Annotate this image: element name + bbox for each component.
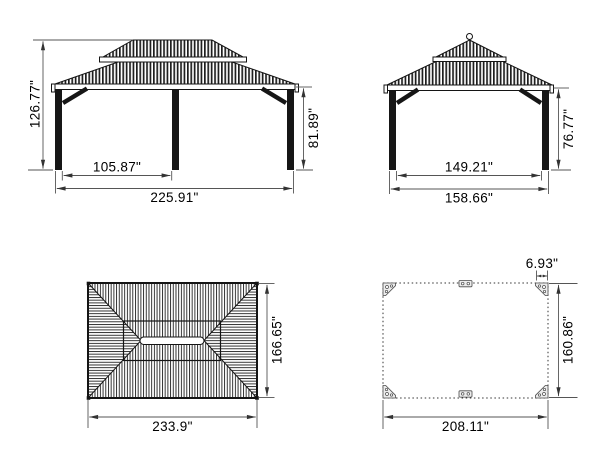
roof-plan-corner-cap-ne bbox=[255, 282, 259, 286]
dim-side-eave-height: 76.77" bbox=[551, 88, 576, 170]
side-eave-height-label: 76.77" bbox=[561, 109, 576, 149]
base-corner-plate-width-label: 6.93" bbox=[526, 256, 559, 271]
front-eave-endcap-right bbox=[295, 84, 299, 92]
front-corner-brace-left bbox=[63, 89, 87, 104]
roof-plan-corner-cap-sw bbox=[87, 396, 91, 400]
front-post-spacing-label: 105.87" bbox=[93, 160, 141, 175]
gazebo-dimension-diagram: 126.77" 81.89" 105.87" 225.91" bbox=[0, 0, 600, 450]
front-overall-height-label: 126.77" bbox=[28, 80, 43, 128]
roof-depth-label: 166.65" bbox=[270, 316, 285, 364]
side-eave-endcap-left bbox=[384, 85, 388, 93]
roof-plan-ridge bbox=[140, 337, 204, 345]
dim-base-corner-plate-width: 6.93" bbox=[526, 256, 559, 281]
dim-base-width: 208.11" bbox=[383, 400, 548, 434]
side-corner-brace-right bbox=[520, 90, 541, 104]
base-plan-outline bbox=[383, 283, 548, 398]
side-elevation-view: 76.77" 149.21" 158.66" bbox=[384, 34, 576, 206]
technical-drawing-page: 126.77" 81.89" 105.87" 225.91" bbox=[0, 0, 600, 450]
dim-front-post-spacing: 105.87" bbox=[62, 160, 171, 181]
dim-front-overall-width: 225.91" bbox=[56, 171, 294, 205]
side-post-right bbox=[542, 91, 549, 171]
dim-side-post-spacing: 149.21" bbox=[397, 160, 542, 181]
front-post-right bbox=[287, 90, 294, 171]
base-width-label: 208.11" bbox=[442, 419, 489, 434]
side-corner-brace-left bbox=[397, 90, 418, 104]
front-corner-brace-right bbox=[262, 89, 286, 104]
side-post-spacing-label: 149.21" bbox=[445, 160, 493, 175]
side-roof-vent-band bbox=[433, 57, 506, 62]
front-elevation-view: 126.77" 81.89" 105.87" 225.91" bbox=[28, 40, 322, 205]
base-corner-plate-sw bbox=[383, 386, 396, 399]
side-roof-finial bbox=[467, 34, 473, 40]
front-post-left bbox=[55, 90, 62, 171]
side-lower-roof bbox=[387, 62, 552, 86]
roof-plan-corner-cap-se bbox=[255, 396, 259, 400]
front-post-center bbox=[172, 90, 179, 171]
dim-side-overall-width: 158.66" bbox=[390, 171, 549, 206]
dim-roof-width: 233.9" bbox=[88, 400, 257, 434]
side-eave-beam bbox=[385, 85, 554, 91]
dim-base-depth: 160.86" bbox=[549, 284, 578, 398]
front-eave-beam bbox=[52, 84, 298, 90]
base-plan-view: 6.93" 160.86" 208.11" bbox=[383, 256, 578, 434]
roof-plan-view: 166.65" 233.9" bbox=[87, 282, 285, 434]
front-overall-width-label: 225.91" bbox=[150, 190, 198, 205]
side-upper-roof bbox=[436, 40, 503, 57]
front-eave-endcap-left bbox=[52, 84, 56, 92]
front-eave-height-label: 81.89" bbox=[306, 108, 321, 148]
side-eave-endcap-right bbox=[550, 85, 554, 93]
base-corner-plate-ne bbox=[536, 283, 549, 296]
base-anchor-top bbox=[459, 281, 472, 287]
front-roof-vent-band bbox=[100, 57, 247, 62]
dim-front-eave-height: 81.89" bbox=[296, 87, 321, 170]
dim-roof-depth: 166.65" bbox=[259, 284, 285, 398]
base-anchor-bottom bbox=[459, 391, 472, 397]
roof-width-label: 233.9" bbox=[152, 419, 192, 434]
base-corner-plate-se bbox=[536, 386, 549, 399]
base-corner-plate bbox=[383, 283, 396, 296]
front-upper-roof bbox=[103, 40, 243, 57]
side-overall-width-label: 158.66" bbox=[445, 191, 493, 206]
base-depth-label: 160.86" bbox=[561, 316, 576, 364]
front-lower-roof bbox=[55, 62, 295, 84]
side-post-left bbox=[389, 91, 396, 171]
roof-plan-corner-cap-nw bbox=[87, 282, 91, 286]
